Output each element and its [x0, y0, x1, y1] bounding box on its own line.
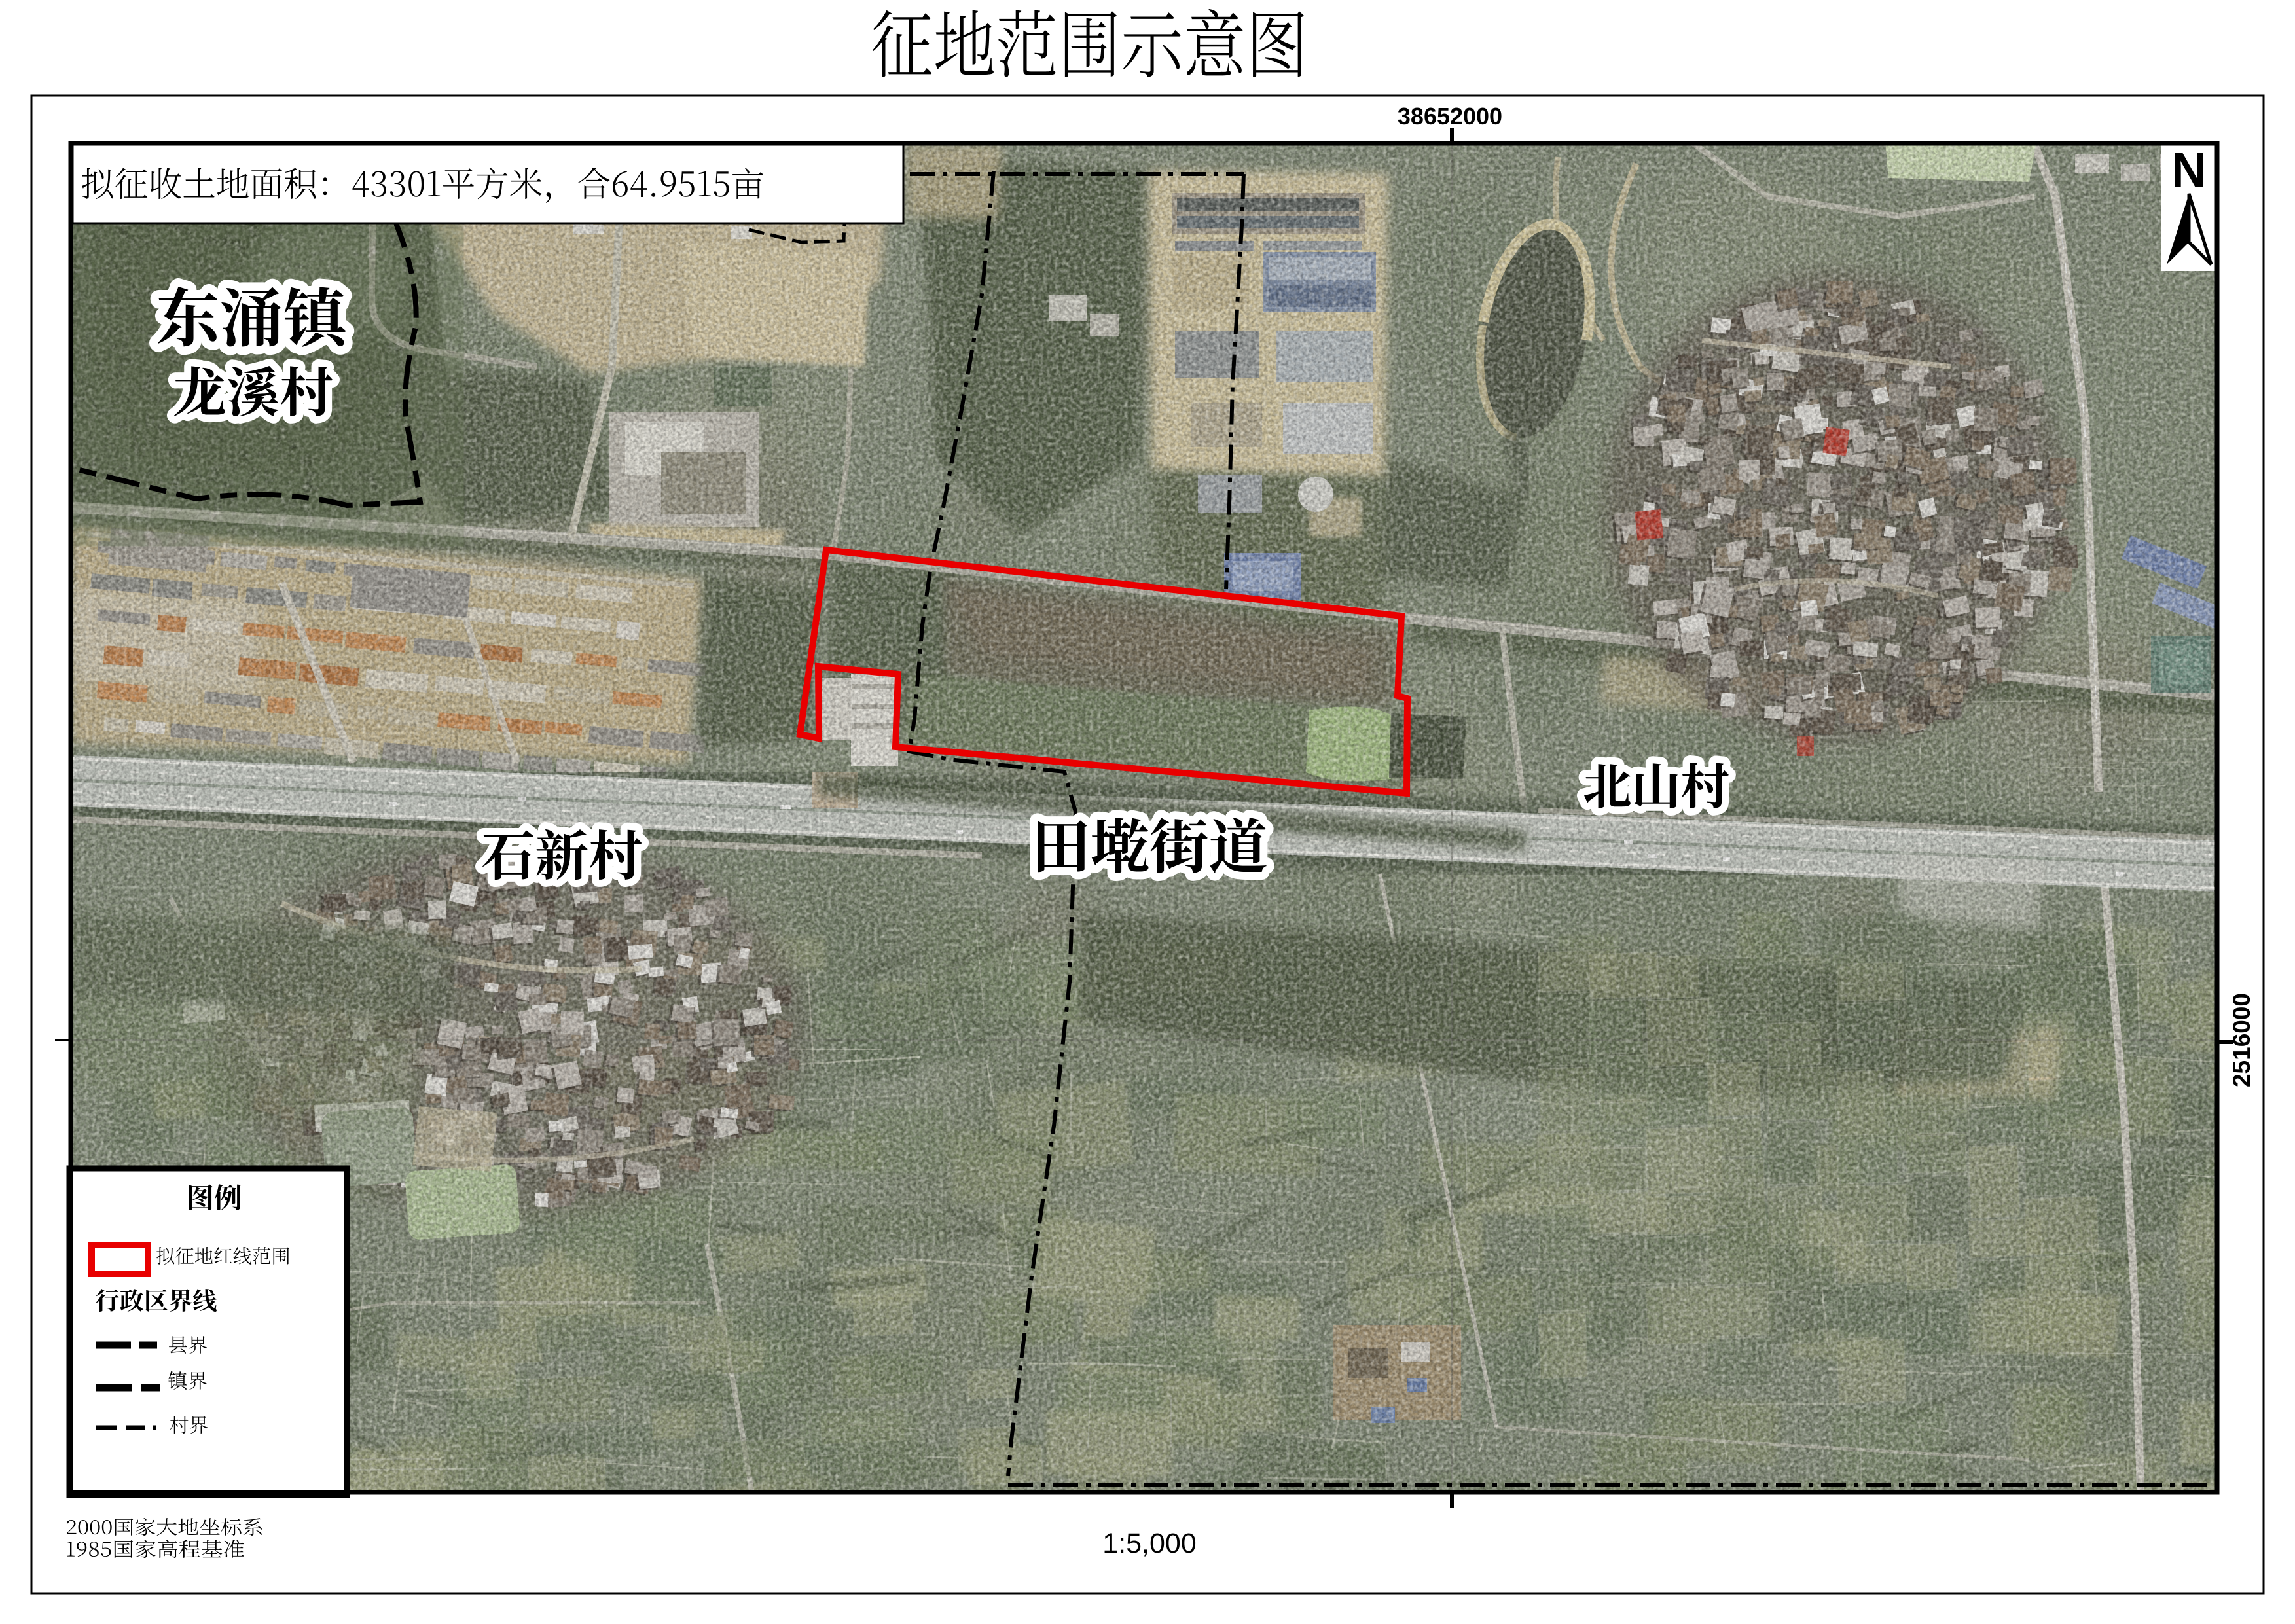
svg-text:N: N [2171, 143, 2206, 197]
svg-text:2516000: 2516000 [2228, 993, 2255, 1087]
svg-text:1:5,000: 1:5,000 [1102, 1528, 1196, 1559]
svg-text:38652000: 38652000 [1398, 103, 1502, 130]
